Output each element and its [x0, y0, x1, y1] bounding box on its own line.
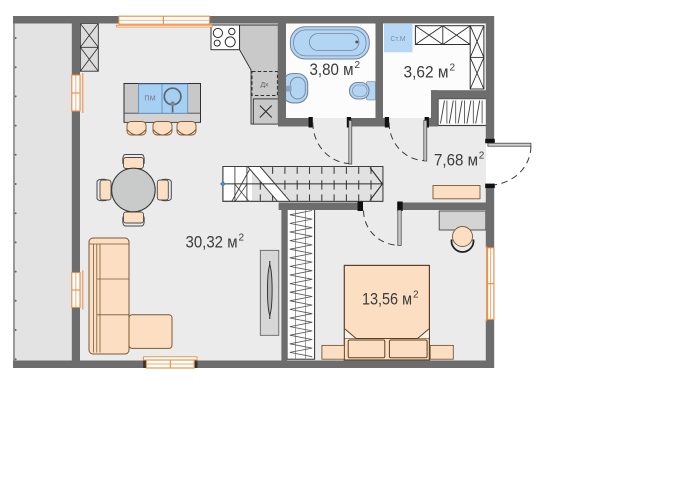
svg-text:2: 2	[479, 151, 485, 162]
svg-text:3,62 м: 3,62 м	[404, 64, 449, 82]
svg-text:Ст.М: Ст.М	[390, 36, 405, 43]
svg-text:2: 2	[355, 60, 361, 71]
svg-text:ПМ: ПМ	[144, 94, 155, 103]
svg-text:2: 2	[450, 63, 456, 74]
svg-text:13,56 м: 13,56 м	[362, 291, 412, 309]
svg-text:Дх: Дх	[260, 82, 269, 89]
svg-text:2: 2	[413, 290, 419, 301]
svg-text:3,80 м: 3,80 м	[310, 61, 354, 79]
svg-text:7,68 м: 7,68 м	[434, 152, 478, 170]
svg-text:30,32 м: 30,32 м	[186, 234, 238, 252]
svg-text:2: 2	[239, 233, 245, 244]
